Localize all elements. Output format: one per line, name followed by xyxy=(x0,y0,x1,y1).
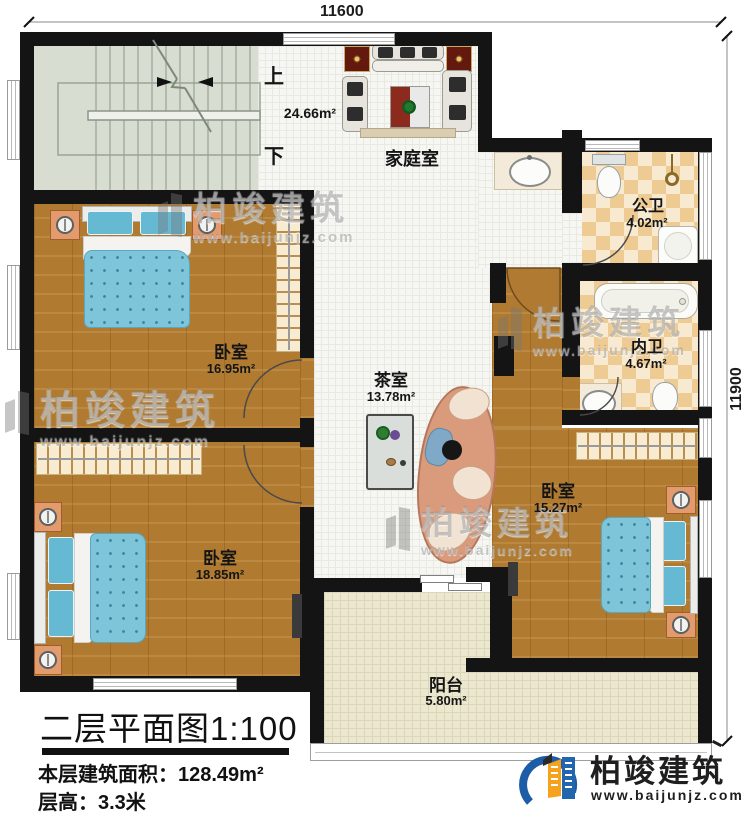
bed xyxy=(600,516,698,614)
flower-arrangement xyxy=(376,426,390,440)
inner-bath-area: 4.67m² xyxy=(625,357,666,371)
side-table xyxy=(446,46,472,72)
tv xyxy=(292,594,302,638)
stair-up-label: 上 xyxy=(264,66,284,88)
dimension-right: 11900 xyxy=(728,358,746,420)
shower-tray xyxy=(658,226,698,268)
public-bath-area: 4.02m² xyxy=(626,216,667,230)
window xyxy=(699,500,712,578)
window xyxy=(699,418,712,458)
floor-area-value: 128.49m² xyxy=(178,764,264,786)
sliding-door-panel xyxy=(420,575,454,583)
bed xyxy=(34,532,146,644)
wall-hall-publicbath xyxy=(562,130,582,213)
bedroom-right-area: 15.27m² xyxy=(534,501,582,515)
family-room-label: 家庭室 xyxy=(385,150,439,170)
pendant-lamp xyxy=(664,154,680,188)
wall-bedroom3-bottom xyxy=(466,658,712,672)
sofa-cushion xyxy=(347,107,363,121)
bedroom-top-left-area: 16.95m² xyxy=(207,362,255,376)
nightstand xyxy=(192,210,222,240)
vanity-counter xyxy=(494,152,562,190)
wardrobe-rod xyxy=(578,445,696,447)
floor-area-line: 本层建筑面积：128.49m² xyxy=(38,758,264,787)
door-opening xyxy=(300,447,314,507)
nightstand xyxy=(34,645,62,675)
dimension-top: 11600 xyxy=(320,3,364,21)
title-underline xyxy=(42,748,289,755)
sofa-cushion xyxy=(347,82,363,96)
wall-exterior-top xyxy=(20,32,492,46)
bedroom-bottom-left-area: 18.85m² xyxy=(196,568,244,582)
person-head xyxy=(442,440,462,460)
lamp xyxy=(198,216,216,234)
window xyxy=(585,140,640,151)
sofa-back xyxy=(372,44,444,60)
wall-corridor-top xyxy=(490,263,506,303)
shower-basin xyxy=(664,232,692,260)
wardrobe xyxy=(36,443,202,475)
lamp xyxy=(672,491,690,509)
pillow xyxy=(48,537,74,584)
bathtub xyxy=(594,283,698,319)
window xyxy=(283,33,395,45)
tea-room-label: 茶室 xyxy=(374,372,408,391)
wardrobe xyxy=(276,196,302,352)
nightstand xyxy=(34,502,62,532)
nightstand xyxy=(666,612,696,638)
toilet-bowl xyxy=(597,166,621,198)
flower-arrangement xyxy=(390,430,400,440)
side-table xyxy=(344,46,370,72)
pillow xyxy=(87,211,133,235)
plant xyxy=(402,100,416,114)
sofa-right xyxy=(442,70,472,132)
wall-tea-balcony xyxy=(310,578,422,592)
family-room-area: 24.66m² xyxy=(284,106,336,121)
pillow xyxy=(662,521,686,561)
window xyxy=(7,573,20,640)
faucet xyxy=(527,155,532,160)
blanket xyxy=(84,250,190,328)
public-bath-label: 公卫 xyxy=(632,198,664,216)
lamp xyxy=(39,508,57,526)
balcony-area: 5.80m² xyxy=(425,694,466,708)
sofa-left xyxy=(342,76,368,132)
tea-room-area: 13.78m² xyxy=(367,390,415,404)
lamp xyxy=(56,216,74,234)
ottoman-band xyxy=(360,128,456,138)
wardrobe xyxy=(576,432,698,460)
balcony-floor-right xyxy=(490,672,698,743)
family-sofa-set xyxy=(342,42,472,138)
stair-down-label: 下 xyxy=(264,146,284,168)
wall-bedroom3-nw-stub xyxy=(494,336,514,376)
sofa-seat xyxy=(372,60,444,72)
toilet xyxy=(592,154,626,200)
bed xyxy=(82,206,192,330)
sofa-cushion xyxy=(449,77,466,92)
floor-plan-canvas: 11600 11900 上 24.66m² 下 家庭室 公卫 4.02m² 内卫… xyxy=(0,0,750,817)
wall-bedroom2-right-upper xyxy=(300,440,314,447)
sofa-cushion xyxy=(422,47,437,58)
wall-exterior-left xyxy=(20,32,34,690)
headboard xyxy=(690,516,698,614)
sliding-door-panel xyxy=(448,583,482,591)
bedroom-bottom-left-label: 卧室 xyxy=(203,550,237,569)
plan-title: 二层平面图1:100 xyxy=(40,702,298,750)
sink xyxy=(509,157,551,187)
window xyxy=(7,265,20,350)
sofa-cushion xyxy=(449,105,466,120)
wall-stair-bedroom1 xyxy=(20,190,314,204)
wall-balcony-left xyxy=(310,578,324,743)
lamp xyxy=(672,616,690,634)
wall-bedroom1-bedroom2 xyxy=(20,428,314,442)
door-opening xyxy=(562,377,580,410)
brand-name: 柏竣建筑 xyxy=(590,746,726,791)
tea-table xyxy=(366,414,414,490)
wall-innerbath-bedroom3 xyxy=(562,410,712,425)
window xyxy=(93,678,237,690)
window xyxy=(699,330,712,407)
pillow xyxy=(140,211,186,235)
tea-item xyxy=(400,460,406,466)
wall-bath-divider xyxy=(562,263,712,281)
pendant-shade xyxy=(665,172,679,186)
sofa-cushion xyxy=(378,47,393,58)
bathtub-drain xyxy=(679,298,686,305)
brand-logo-icon xyxy=(516,748,584,810)
wall-innerbath-left xyxy=(562,281,580,377)
bedroom-top-left-label: 卧室 xyxy=(214,344,248,363)
lounge-sofa xyxy=(408,378,500,568)
tv xyxy=(508,562,518,596)
pillow xyxy=(662,566,686,606)
sofa-cushion xyxy=(400,47,415,58)
door-opening xyxy=(562,213,582,263)
wardrobe-rod xyxy=(38,458,200,460)
wall-notch-vertical xyxy=(478,32,492,152)
pendant-cord xyxy=(671,154,673,174)
wardrobe-rod xyxy=(288,198,290,350)
inner-bath-label: 内卫 xyxy=(631,339,663,357)
tea-item xyxy=(386,458,396,466)
nightstand xyxy=(666,486,696,514)
floor-height-line: 层高：3.3米 xyxy=(38,786,146,815)
floor-area-label: 本层建筑面积： xyxy=(38,764,178,786)
stairwell-floor xyxy=(34,46,258,190)
door-opening xyxy=(300,358,314,418)
nightstand xyxy=(50,210,80,240)
pillow xyxy=(48,590,74,637)
headboard xyxy=(34,532,46,644)
wall-bedroom1-right-upper xyxy=(300,190,314,358)
bathtub-basin xyxy=(601,289,689,313)
blanket xyxy=(90,533,146,643)
toilet-tank xyxy=(592,154,626,165)
sliding-door xyxy=(420,574,482,594)
blanket xyxy=(601,517,651,613)
window xyxy=(7,80,20,160)
lamp xyxy=(39,651,57,669)
brand-website: www.baijunjz.com xyxy=(591,787,744,803)
bedroom-right-label: 卧室 xyxy=(541,483,575,502)
window xyxy=(699,152,712,260)
